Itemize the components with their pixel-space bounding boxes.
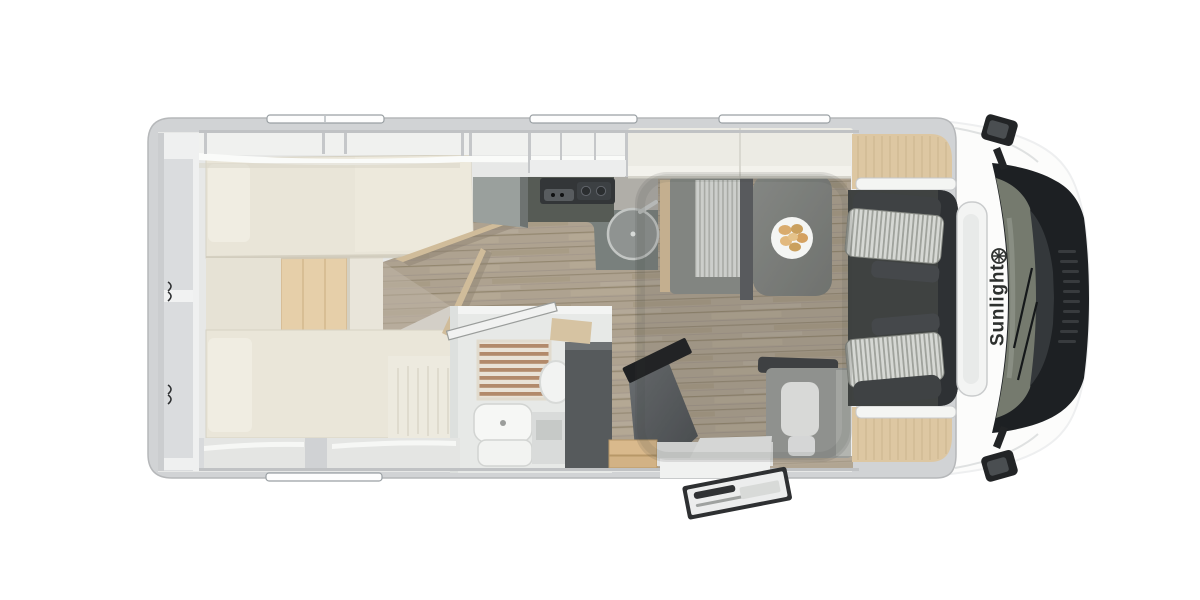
svg-text:Sunlight: Sunlight bbox=[988, 264, 1009, 346]
